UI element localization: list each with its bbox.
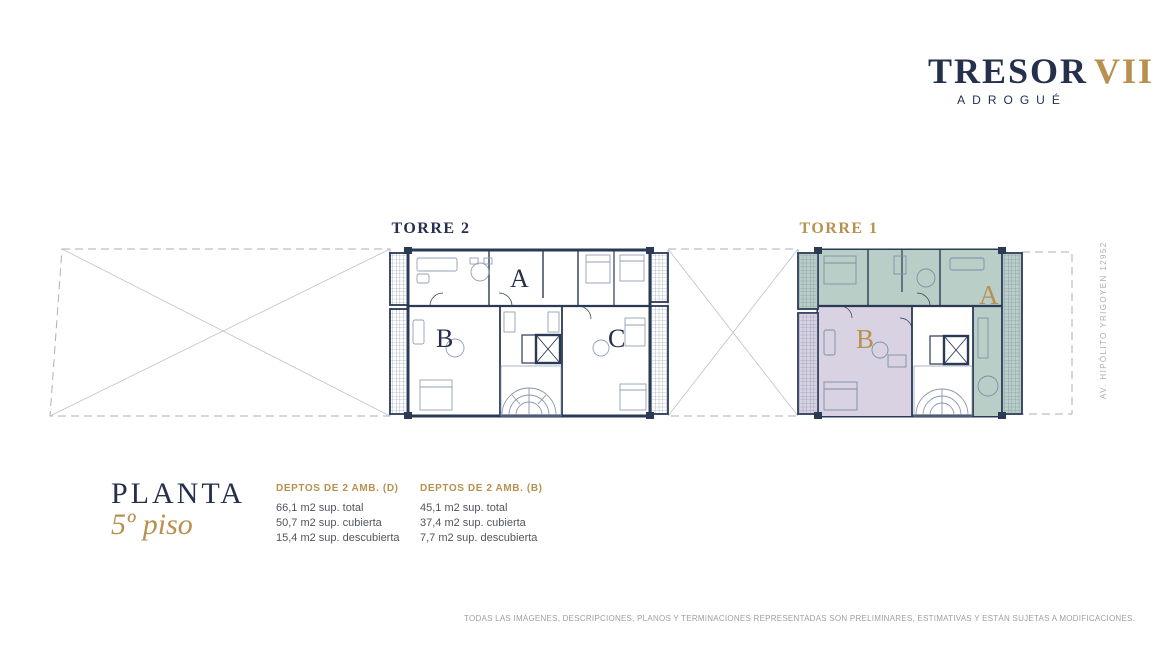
unit-label-t2-c: C (608, 324, 625, 353)
spec-line: 45,1 m2 sup. total (420, 501, 570, 516)
unit-label-t2-b: B (436, 324, 453, 353)
spec-block-deptos-d: DEPTOS DE 2 AMB. (D) 66,1 m2 sup. total … (276, 483, 426, 546)
spec-title-b: DEPTOS DE 2 AMB. (B) (420, 483, 570, 494)
plan-title-block: PLANTA 5º piso (111, 479, 245, 541)
brand-numeral: VII (1094, 51, 1154, 91)
torre-1-plan: A B (798, 247, 1022, 419)
spec-title-d: DEPTOS DE 2 AMB. (D) (276, 483, 426, 494)
brand-name: TRESOR (928, 51, 1088, 91)
floor-plan-page: A B C (0, 0, 1174, 670)
brand-location: ADROGUÉ (928, 93, 1096, 107)
spec-line: 66,1 m2 sup. total (276, 501, 426, 516)
spec-line: 15,4 m2 sup. descubierta (276, 531, 426, 546)
unit-label-t1-b: B (856, 324, 874, 354)
spec-line: 50,7 m2 sup. cubierta (276, 516, 426, 531)
spec-line: 7,7 m2 sup. descubierta (420, 531, 570, 546)
spec-line: 37,4 m2 sup. cubierta (420, 516, 570, 531)
unit-label-t1-a: A (979, 280, 999, 310)
torre-2-plan: A B C (390, 247, 668, 419)
plan-floor-subtitle: 5º piso (111, 509, 245, 541)
street-address-label: AV. HIPÓLITO YRIGOYEN 12952 (1099, 249, 1108, 399)
brand-logo: TRESORVII ADROGUÉ (928, 52, 1096, 107)
tower-1-label: TORRE 1 (794, 220, 884, 238)
spec-block-deptos-b: DEPTOS DE 2 AMB. (B) 45,1 m2 sup. total … (420, 483, 570, 546)
disclaimer-text: TODAS LAS IMÁGENES, DESCRIPCIONES, PLANO… (464, 614, 1124, 623)
plan-title: PLANTA (111, 479, 245, 509)
brand-title: TRESORVII (928, 52, 1096, 90)
tower-2-label: TORRE 2 (386, 220, 476, 238)
unit-b-region (818, 306, 912, 416)
unit-label-t2-a: A (510, 264, 529, 293)
